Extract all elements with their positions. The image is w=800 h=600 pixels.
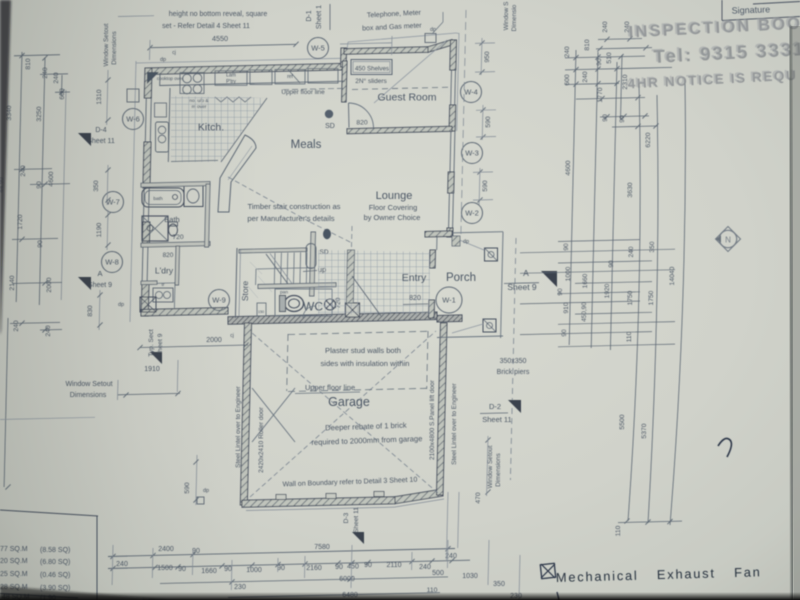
svg-text:Porch: Porch	[446, 272, 476, 284]
svg-text:600: 600	[564, 74, 571, 86]
svg-text:820: 820	[409, 295, 421, 302]
svg-text:7580: 7580	[314, 544, 330, 551]
svg-text:5500: 5500	[619, 414, 626, 429]
svg-text:D-1: D-1	[306, 10, 313, 21]
svg-text:W-2: W-2	[465, 209, 479, 218]
svg-text:450: 450	[347, 564, 359, 571]
svg-text:1750: 1750	[648, 290, 655, 305]
svg-text:240: 240	[419, 564, 431, 571]
svg-text:Sheet 1: Sheet 1	[316, 5, 323, 29]
svg-text:4600: 4600	[565, 160, 572, 175]
svg-text:Lounge: Lounge	[376, 190, 413, 202]
svg-text:90: 90	[335, 564, 343, 571]
svg-text:ref: ref	[287, 74, 293, 80]
svg-text:Guest Room: Guest Room	[378, 92, 437, 104]
svg-text:Steel Lintel over to Engineer: Steel Lintel over to Engineer	[451, 382, 458, 464]
svg-text:470: 470	[475, 492, 482, 504]
svg-text:Dimensio: Dimensio	[511, 4, 518, 31]
svg-text:2N° sliders: 2N° sliders	[355, 77, 387, 85]
svg-text:W-5: W-5	[311, 44, 325, 53]
svg-text:810: 810	[584, 39, 591, 51]
svg-text:90: 90	[277, 565, 285, 572]
svg-text:240: 240	[628, 246, 635, 257]
svg-text:D-3: D-3	[343, 512, 350, 523]
svg-text:240: 240	[602, 21, 609, 33]
svg-text:240: 240	[445, 553, 457, 560]
svg-text:Sheet 11: Sheet 11	[482, 415, 511, 424]
svg-text:14040: 14040	[669, 266, 676, 285]
svg-text:590: 590	[485, 116, 492, 128]
svg-text:D-2: D-2	[489, 402, 501, 411]
svg-text:Entry: Entry	[402, 272, 427, 284]
svg-text:2110: 2110	[386, 562, 401, 569]
svg-text:1000: 1000	[565, 266, 572, 281]
svg-text:2160: 2160	[306, 565, 322, 572]
svg-text:Upper floor line: Upper floor line	[281, 89, 325, 96]
svg-text:240: 240	[564, 46, 571, 58]
svg-text:per Manufacturer's details: per Manufacturer's details	[247, 214, 334, 223]
svg-text:90: 90	[561, 329, 568, 337]
svg-text:Floor Covering: Floor Covering	[369, 203, 417, 212]
svg-text:1750: 1750	[627, 290, 634, 305]
svg-text:W-3: W-3	[465, 149, 479, 158]
svg-text:Garage: Garage	[328, 395, 370, 409]
svg-text:950: 950	[484, 51, 491, 63]
svg-text:W-1: W-1	[442, 296, 456, 305]
svg-text:350: 350	[649, 241, 656, 252]
svg-text:350: 350	[493, 581, 505, 588]
svg-text:450,90: 450,90	[581, 302, 588, 322]
svg-text:90: 90	[364, 562, 372, 569]
svg-text:90,: 90,	[596, 56, 603, 66]
svg-text:110: 110	[615, 525, 622, 536]
svg-text:by Owner Choice: by Owner Choice	[364, 213, 421, 222]
svg-text:2100x4800 S.Panel lift door: 2100x4800 S.Panel lift door	[429, 379, 436, 460]
svg-text:500: 500	[432, 570, 444, 577]
svg-text:90: 90	[602, 114, 609, 122]
svg-text:1660: 1660	[582, 273, 589, 288]
svg-text:N: N	[725, 236, 731, 245]
svg-text:Plaster stud walls both: Plaster stud walls both	[325, 346, 401, 355]
svg-text:Upper floor line: Upper floor line	[305, 383, 355, 392]
svg-text:sides with insulation within: sides with insulation within	[320, 359, 409, 368]
svg-text:Window S: Window S	[503, 2, 510, 31]
svg-text:pan: pan	[280, 291, 288, 296]
svg-text:Sheet 11: Sheet 11	[353, 507, 360, 533]
svg-text:1770: 1770	[597, 87, 604, 102]
svg-text:6000: 6000	[339, 576, 355, 583]
svg-text:910: 910	[563, 302, 570, 313]
svg-text:3630: 3630	[627, 182, 634, 197]
svg-text:90: 90	[563, 243, 570, 251]
svg-text:dp: dp	[463, 239, 469, 245]
svg-text:240: 240	[582, 71, 589, 83]
svg-text:Brick piers: Brick piers	[497, 369, 530, 376]
svg-text:Window Setout: Window Setout	[487, 445, 494, 488]
svg-text:590: 590	[482, 180, 489, 192]
svg-text:90: 90	[557, 288, 564, 296]
svg-text:1920: 1920	[604, 283, 611, 298]
svg-text:W-4: W-4	[464, 88, 478, 97]
svg-text:350x350: 350x350	[500, 358, 527, 365]
svg-text:5370: 5370	[641, 423, 648, 438]
svg-text:110: 110	[626, 331, 633, 342]
svg-text:450 Shelves: 450 Shelves	[355, 66, 389, 73]
svg-text:SD: SD	[325, 123, 335, 130]
svg-text:Meals: Meals	[291, 139, 322, 151]
svg-text:90: 90	[619, 115, 626, 123]
svg-text:1030: 1030	[462, 573, 478, 580]
svg-text:Dimensions: Dimensions	[495, 453, 502, 486]
svg-text:Signature: Signature	[731, 4, 770, 15]
svg-text:6220: 6220	[645, 132, 652, 147]
svg-text:820: 820	[356, 120, 368, 127]
svg-text:90: 90	[608, 260, 615, 268]
svg-text:Timber stair construction as: Timber stair construction as	[248, 202, 341, 211]
svg-text:510: 510	[606, 52, 613, 64]
svg-text:dp: dp	[430, 27, 436, 33]
